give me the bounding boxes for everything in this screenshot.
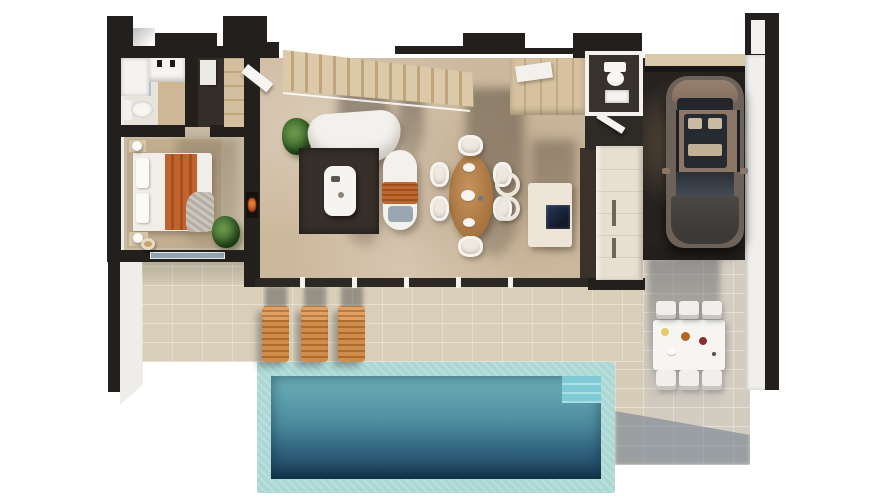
outdoor-chair-top-3	[702, 301, 722, 319]
outdoor-chair-top-1	[656, 301, 676, 319]
wc-toilet-bowl	[607, 71, 624, 86]
bathroom-closet-wall	[185, 58, 198, 127]
outdoor-plate-2	[681, 332, 690, 341]
dining-plate-1	[463, 163, 475, 172]
coffee-table-deco-2	[338, 192, 344, 198]
sun-lounger-2	[301, 306, 328, 362]
terrace-shade-bedroom	[142, 262, 255, 288]
bedside-lamp-top	[132, 141, 142, 151]
chaise-orange-towel	[382, 182, 418, 204]
bathroom-bedroom-wall-left	[121, 125, 185, 137]
car-seat-2	[708, 118, 722, 129]
coffee-table	[324, 166, 356, 216]
dining-plate-3	[463, 218, 475, 227]
sun-lounger-3	[338, 306, 365, 362]
appliance-handle-2	[612, 238, 616, 258]
outdoor-plate-1	[661, 328, 669, 336]
right-wall	[765, 13, 779, 390]
outdoor-chair-bottom-2	[679, 370, 699, 390]
bar-stool-2	[495, 196, 520, 221]
car-seat-1	[688, 118, 702, 129]
dining-chair-top	[458, 135, 483, 156]
pool-steps	[562, 376, 601, 403]
outdoor-plate-3	[699, 337, 707, 345]
dining-plate-2	[461, 190, 475, 201]
bedroom-plant	[212, 216, 240, 248]
bed-pillow-1	[136, 158, 149, 188]
slider-shadow-3	[341, 286, 363, 308]
wc-basin	[605, 90, 629, 103]
appliance-handle-1	[612, 200, 616, 226]
dining-chair-bottom	[458, 236, 483, 257]
island-cooktop	[546, 205, 570, 229]
toilet-bowl	[131, 101, 153, 118]
outdoor-chair-bottom-1	[656, 370, 676, 390]
kitchen-counter-run	[596, 146, 643, 280]
left-wall	[107, 46, 121, 258]
outdoor-plate-4	[667, 348, 676, 355]
bathroom-floor-tan	[158, 78, 185, 127]
right-outer-white-wall	[745, 55, 765, 390]
sun-lounger-1	[262, 306, 289, 362]
bed-knit-blanket	[186, 192, 214, 232]
bed-headboard	[128, 153, 133, 231]
vanity-tap-1	[157, 60, 162, 67]
parapet-line-right	[525, 48, 573, 54]
closet-shelf	[200, 60, 216, 85]
pool-water	[271, 376, 601, 479]
slider-post-5	[508, 277, 513, 288]
dining-chair-left-2	[430, 196, 449, 221]
floorplan-canvas	[0, 0, 890, 500]
car-windshield	[676, 172, 734, 198]
shower-tray	[121, 58, 151, 96]
dining-chair-left-1	[430, 162, 449, 187]
slider-shadow-2	[304, 286, 326, 308]
car-mirror-left	[662, 168, 670, 174]
bathroom-vanity	[149, 58, 185, 82]
coffee-table-deco-1	[331, 176, 340, 182]
car-hood	[671, 196, 739, 244]
slider-post-1	[300, 277, 305, 288]
outdoor-chair-bottom-3	[702, 370, 722, 390]
bar-stool-1	[495, 172, 520, 197]
outdoor-chair-top-2	[679, 301, 699, 319]
bed-pillow-2	[136, 193, 149, 223]
dining-deco-blue	[478, 196, 483, 201]
bedroom-slider-glass	[150, 252, 225, 259]
bedroom-stool	[141, 238, 155, 250]
garden-wall-left	[108, 258, 120, 392]
slider-shadow-1	[265, 286, 287, 308]
garage-door-line	[645, 66, 749, 72]
chaise-pillow	[388, 206, 413, 222]
left-walkway	[120, 258, 143, 405]
top-wall-left	[107, 46, 223, 58]
wardrobe	[224, 58, 244, 127]
outdoor-deco-dot	[712, 352, 716, 356]
slider-post-4	[456, 277, 461, 288]
parapet-line-stairs	[265, 42, 279, 58]
parapet-block-d	[463, 33, 525, 54]
slider-post-3	[404, 277, 409, 288]
fireplace-flame	[248, 198, 256, 212]
slider-post-2	[352, 277, 357, 288]
vanity-tap-2	[170, 60, 175, 67]
car-seat-3	[688, 144, 722, 156]
car-mirror-right	[740, 168, 748, 174]
